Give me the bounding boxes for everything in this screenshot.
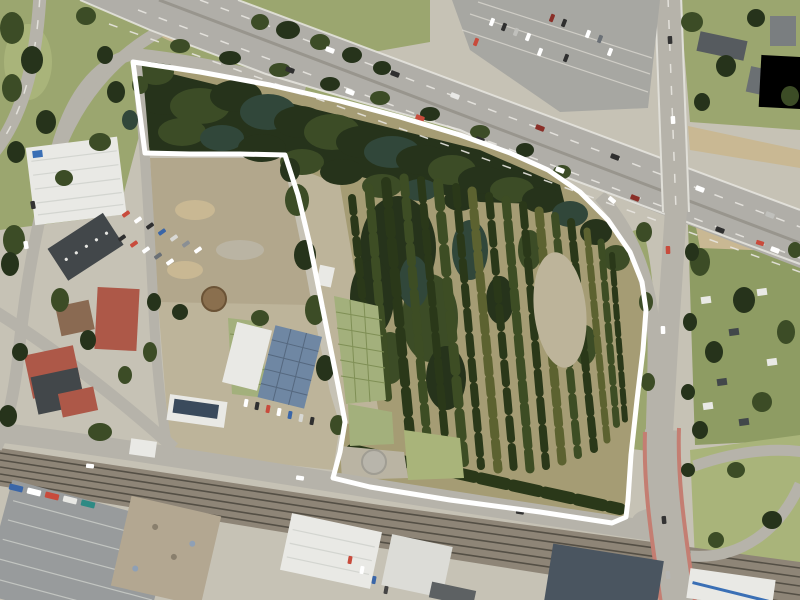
site-lawn: [404, 430, 464, 480]
tree-canopy: [683, 313, 697, 331]
tree-canopy: [36, 110, 56, 134]
tree-canopy: [692, 421, 708, 439]
tree-canopy: [781, 86, 799, 106]
tree-canopy: [2, 74, 22, 102]
tree-canopy: [200, 125, 244, 151]
tree-canopy: [681, 384, 695, 400]
lot-texture: [175, 200, 215, 220]
garden-shed: [703, 402, 714, 410]
garden-shed: [767, 358, 778, 366]
garden-shed: [729, 328, 740, 336]
warehouse-white: [26, 137, 127, 226]
tree-canopy: [97, 46, 113, 64]
tree-canopy: [777, 320, 795, 344]
tree-canopy: [694, 93, 710, 111]
tree-canopy: [12, 343, 28, 361]
warehouse-roof: [26, 137, 127, 226]
vehicle: [671, 116, 676, 124]
tree-canopy: [170, 39, 190, 53]
tree-canopy: [55, 170, 73, 186]
tree-canopy: [143, 342, 157, 362]
tree-canopy: [219, 51, 241, 65]
tree-canopy: [681, 463, 695, 477]
tree-canopy: [1, 252, 19, 276]
tree-canopy: [158, 118, 206, 146]
tree-canopy: [373, 61, 391, 75]
tree-canopy: [122, 110, 138, 130]
tree-canopy: [118, 366, 132, 384]
red-roof-block: [94, 287, 139, 351]
aerial-map: [0, 0, 800, 600]
tree-canopy: [147, 293, 161, 311]
vehicle: [86, 463, 94, 468]
tree-canopy: [51, 288, 69, 312]
tree-canopy: [238, 134, 286, 162]
garden-shed: [701, 296, 712, 304]
tree-canopy: [7, 141, 25, 163]
tree-canopy: [733, 287, 755, 313]
garden-shed: [717, 378, 728, 386]
tree-canopy: [762, 511, 782, 529]
garden-shed: [739, 418, 750, 426]
tree-canopy: [107, 81, 125, 103]
tree-canopy: [0, 12, 24, 44]
tree-canopy: [685, 243, 699, 261]
garden-shed: [757, 288, 768, 296]
tree-canopy: [370, 91, 390, 105]
tree-canopy: [641, 373, 655, 391]
tree-canopy: [636, 222, 652, 242]
tree-canopy: [705, 341, 723, 363]
tree-canopy: [747, 9, 765, 27]
vehicle: [666, 246, 671, 254]
round-tank: [202, 287, 226, 311]
tree-canopy: [276, 21, 300, 39]
tree-canopy: [752, 392, 772, 412]
tree-canopy: [251, 310, 269, 326]
tree-canopy: [681, 12, 703, 32]
lot-texture: [216, 240, 264, 260]
tree-canopy: [76, 7, 96, 25]
vehicle: [661, 326, 666, 334]
tree-canopy: [21, 46, 43, 74]
tree-canopy: [342, 47, 362, 63]
tree-canopy: [727, 462, 745, 478]
tree-canopy: [80, 330, 96, 350]
vehicle: [665, 571, 670, 579]
tree-canopy: [89, 133, 111, 151]
paved-circle: [362, 450, 386, 474]
overpass-middle: [662, 210, 676, 432]
tree-canopy: [716, 55, 736, 77]
building-ne: [770, 16, 796, 46]
vehicle: [661, 516, 666, 524]
tree-canopy: [172, 304, 188, 320]
tree-canopy: [708, 532, 724, 548]
tree-canopy: [320, 77, 340, 91]
tree-canopy: [88, 423, 112, 441]
tree-canopy: [320, 159, 364, 185]
logo-mark: [32, 150, 43, 158]
vehicle: [668, 36, 673, 44]
tree-canopy: [3, 225, 25, 255]
tree-canopy: [251, 14, 269, 30]
lot-texture: [167, 261, 203, 279]
tree-canopy: [470, 125, 490, 139]
